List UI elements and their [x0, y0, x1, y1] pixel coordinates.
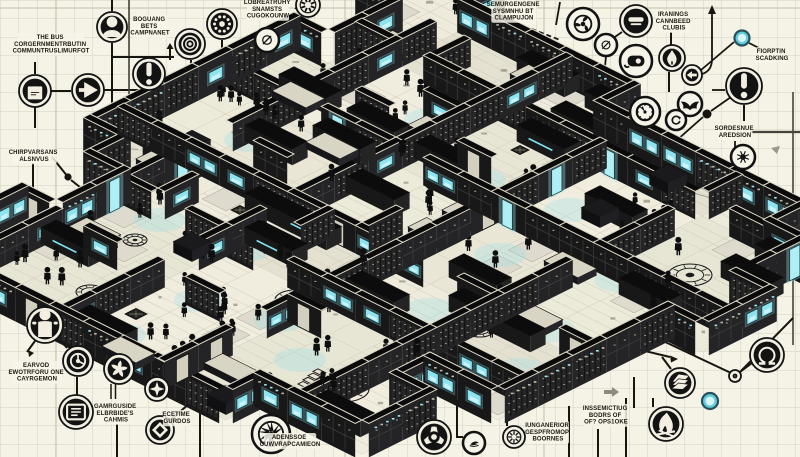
svg-text:SEMURGENGENE SYSMNHU BT CLAMPU: SEMURGENGENE SYSMNHU BT CLAMPUJON: [487, 2, 542, 21]
svg-text:FIORPTIN SCADKING: FIORPTIN SCADKING: [756, 49, 789, 62]
svg-text:ECETIME GURDOS: ECETIME GURDOS: [162, 412, 191, 425]
svg-text:INSSEMICTIUG BODRS OF OF? OPS1: INSSEMICTIUG BODRS OF OF? OPS1OKE: [583, 406, 629, 425]
svg-text:SORDESNUE AREDSION: SORDESNUE AREDSION: [715, 126, 756, 139]
